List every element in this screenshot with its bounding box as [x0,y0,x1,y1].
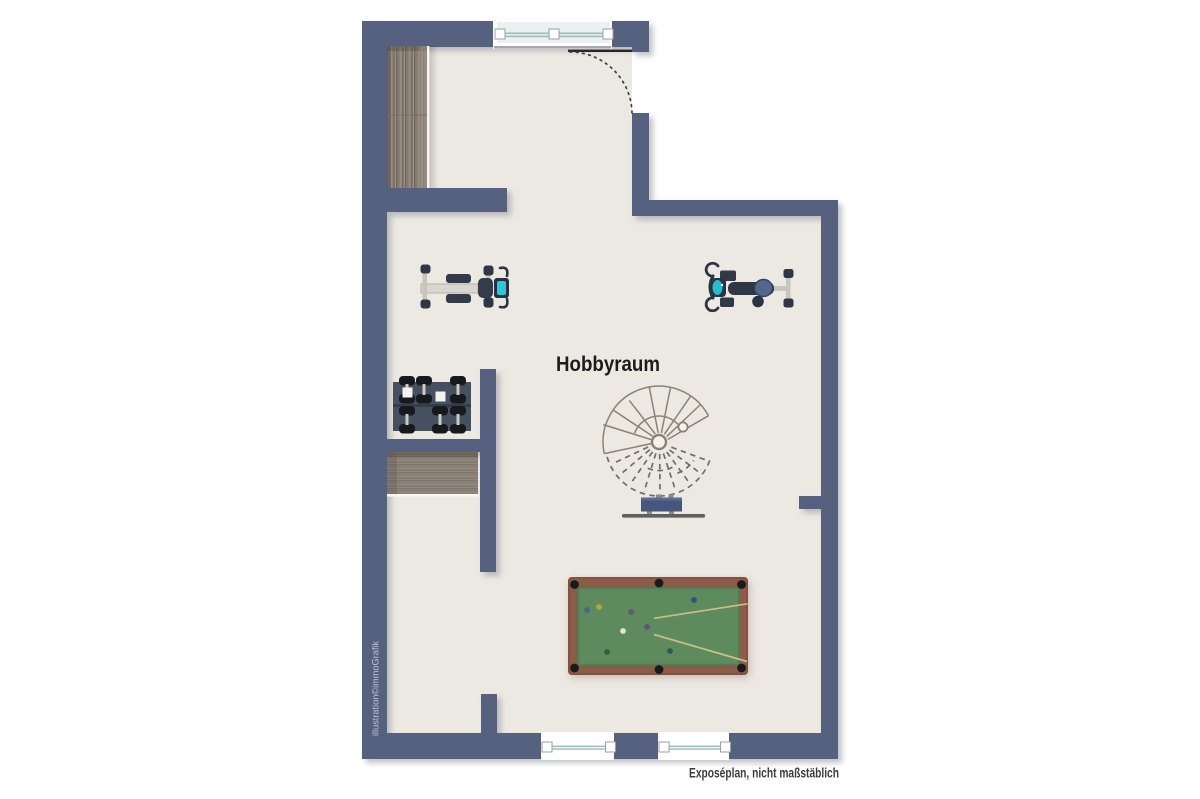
svg-text:illustration©immoGrafik: illustration©immoGrafik [371,640,381,736]
svg-text:Exposéplan, nicht maßstäblich: Exposéplan, nicht maßstäblich [689,765,839,781]
svg-text:Hobbyraum: Hobbyraum [556,353,660,376]
